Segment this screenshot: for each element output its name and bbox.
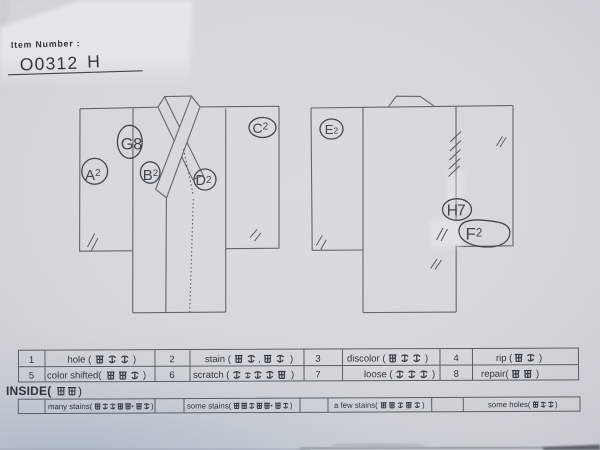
svg-text:): ) [539, 353, 542, 364]
svg-text:repair(: repair( [481, 369, 509, 380]
svg-text:): ) [555, 400, 558, 409]
svg-text:3: 3 [315, 354, 320, 365]
svg-text:discolor (: discolor ( [347, 353, 386, 364]
svg-text:2: 2 [169, 354, 174, 365]
svg-text:loose (: loose ( [364, 369, 393, 380]
svg-text:1: 1 [29, 355, 34, 366]
svg-text:many stains(: many stains( [48, 402, 93, 411]
svg-text:,: , [258, 354, 261, 365]
svg-text:Item Number :: Item Number : [11, 38, 81, 50]
svg-text:): ) [425, 353, 428, 364]
svg-text:INSIDE(: INSIDE( [6, 384, 51, 398]
svg-text:stain (: stain ( [205, 354, 232, 365]
svg-text:7: 7 [315, 369, 320, 380]
svg-text:6: 6 [169, 370, 174, 381]
svg-text:): ) [133, 354, 136, 365]
svg-text:hole (: hole ( [67, 355, 92, 366]
svg-text:a few stains(: a few stains( [334, 401, 378, 410]
svg-text:some stains(: some stains( [187, 401, 232, 410]
svg-text:): ) [290, 401, 293, 410]
svg-text:4: 4 [454, 353, 459, 364]
svg-text:rip (: rip ( [496, 353, 513, 364]
svg-text:O0312: O0312 [19, 53, 78, 75]
svg-text:): ) [78, 384, 82, 398]
svg-text:H7: H7 [447, 203, 465, 220]
svg-text:H: H [87, 51, 100, 71]
svg-text:8: 8 [454, 369, 459, 380]
svg-text:5: 5 [29, 371, 34, 382]
svg-text:): ) [422, 401, 425, 410]
svg-text:some holes(: some holes( [488, 400, 531, 409]
svg-text:color shifted(: color shifted( [47, 370, 102, 381]
svg-text:): ) [151, 402, 154, 411]
svg-text:): ) [432, 369, 435, 380]
svg-text:): ) [290, 354, 293, 365]
svg-text:): ) [143, 370, 146, 381]
svg-text:G8: G8 [121, 136, 142, 154]
svg-text:): ) [291, 370, 294, 381]
svg-text:scratch (: scratch ( [193, 370, 230, 381]
svg-text:): ) [536, 369, 539, 380]
